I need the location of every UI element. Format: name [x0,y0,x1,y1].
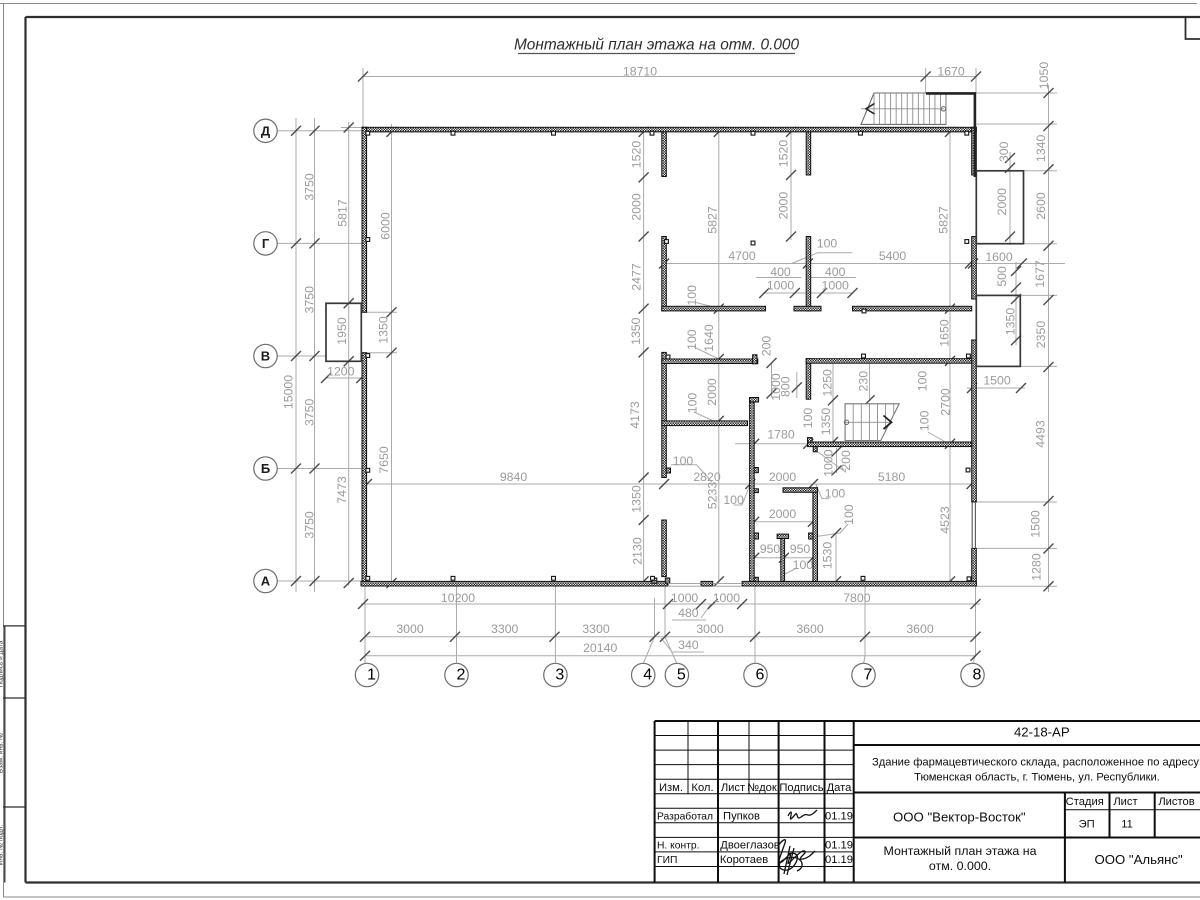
svg-text:Здание фармацевтического склад: Здание фармацевтического склада, располо… [872,757,1200,769]
svg-text:7650: 7650 [377,446,391,474]
svg-text:340: 340 [678,638,699,652]
svg-text:Подпись и дата: Подпись и дата [0,640,5,687]
svg-text:3750: 3750 [302,511,316,539]
svg-text:1340: 1340 [1034,134,1048,162]
svg-text:Инв. № подл.: Инв. № подл. [0,825,5,866]
svg-text:2600: 2600 [1034,192,1048,220]
svg-text:200: 200 [759,336,773,357]
svg-text:1677: 1677 [1033,260,1047,288]
svg-text:950: 950 [790,542,811,556]
svg-text:1000: 1000 [713,591,741,605]
svg-text:ГИП: ГИП [657,855,677,866]
svg-text:100: 100 [918,410,932,431]
svg-text:4173: 4173 [628,401,642,429]
svg-text:4493: 4493 [1033,420,1047,448]
svg-text:4700: 4700 [728,249,756,263]
svg-text:400: 400 [770,265,791,279]
svg-text:5233: 5233 [705,482,719,510]
svg-text:100: 100 [723,493,744,507]
svg-text:100: 100 [685,285,699,306]
svg-text:500: 500 [995,266,1009,287]
svg-text:1000: 1000 [671,591,699,605]
svg-text:1650: 1650 [937,319,951,347]
svg-text:6: 6 [756,667,765,684]
svg-text:1350: 1350 [629,317,643,345]
svg-text:1670: 1670 [937,64,965,78]
svg-text:3600: 3600 [796,622,824,636]
svg-text:3600: 3600 [906,622,934,636]
svg-text:5180: 5180 [878,470,906,484]
svg-text:01.19: 01.19 [825,854,853,866]
svg-text:Тюменская область, г. Тюмень,: Тюменская область, г. Тюмень, ул. Респуб… [914,772,1160,784]
svg-text:Изм.: Изм. [659,782,683,794]
svg-text:5: 5 [677,667,686,684]
svg-text:Двоеглазов: Двоеглазов [720,839,780,851]
svg-text:1050: 1050 [1037,62,1051,90]
svg-text:1000: 1000 [822,449,836,477]
svg-text:2000: 2000 [769,470,797,484]
svg-text:№док.: №док. [747,782,780,794]
svg-text:1500: 1500 [983,373,1011,387]
svg-text:4: 4 [643,667,652,684]
svg-text:А: А [261,574,271,589]
svg-text:01.19: 01.19 [825,810,853,822]
svg-text:1640: 1640 [702,324,716,352]
svg-text:1280: 1280 [1029,553,1043,581]
svg-text:200: 200 [839,450,853,471]
svg-text:7473: 7473 [335,476,349,504]
svg-text:5817: 5817 [335,199,349,227]
svg-text:1000: 1000 [822,279,850,293]
svg-text:480: 480 [678,606,699,620]
svg-text:Подпись: Подпись [779,782,823,794]
svg-text:Г: Г [262,236,270,251]
svg-text:Дата: Дата [827,782,853,794]
svg-text:Кол.: Кол. [691,782,713,794]
svg-text:10200: 10200 [441,591,475,605]
svg-text:1200: 1200 [327,364,355,378]
svg-text:100: 100 [916,371,930,392]
svg-text:9840: 9840 [500,470,528,484]
svg-text:3750: 3750 [302,286,316,314]
svg-text:2000: 2000 [769,507,797,521]
svg-text:3: 3 [555,667,564,684]
svg-text:Н. контр.: Н. контр. [657,840,700,851]
svg-text:100: 100 [793,558,814,572]
svg-text:100: 100 [817,236,838,250]
svg-text:2700: 2700 [938,388,952,416]
svg-text:100: 100 [673,454,694,468]
svg-text:2: 2 [457,667,466,684]
svg-text:1000: 1000 [767,279,795,293]
svg-text:ООО "Альянс": ООО "Альянс" [1095,852,1183,867]
svg-text:Д: Д [261,124,271,139]
svg-text:8: 8 [973,667,982,684]
svg-text:Стадия: Стадия [1066,796,1104,808]
svg-text:Монтажный план этажа на отм. 0: Монтажный план этажа на отм. 0.000 [514,37,799,54]
svg-text:1950: 1950 [335,317,349,345]
svg-text:1520: 1520 [629,141,643,169]
svg-text:230: 230 [857,371,871,392]
svg-text:42-18-АР: 42-18-АР [1014,724,1070,739]
svg-text:7: 7 [864,667,873,684]
svg-text:Лист: Лист [721,782,745,794]
svg-text:950: 950 [760,542,781,556]
svg-text:2130: 2130 [630,537,644,565]
svg-text:ООО "Вектор-Восток": ООО "Вектор-Восток" [893,810,1026,825]
svg-text:ЭП: ЭП [1079,819,1095,831]
svg-text:18710: 18710 [623,64,657,78]
svg-text:7800: 7800 [843,591,871,605]
svg-text:3300: 3300 [582,622,610,636]
svg-text:01.19: 01.19 [825,839,853,851]
svg-text:1250: 1250 [821,369,835,397]
svg-text:Лист: Лист [1113,796,1137,808]
svg-text:100: 100 [685,329,699,350]
svg-text:5827: 5827 [705,206,719,234]
svg-text:2820: 2820 [693,470,721,484]
svg-text:15000: 15000 [281,375,295,409]
svg-text:Листов: Листов [1158,796,1194,808]
svg-text:1600: 1600 [985,250,1013,264]
svg-text:4523: 4523 [938,506,952,534]
svg-text:3000: 3000 [696,622,724,636]
svg-text:400: 400 [825,265,846,279]
svg-text:2350: 2350 [1034,321,1048,349]
svg-text:Б: Б [261,461,270,476]
svg-text:5400: 5400 [879,249,907,263]
svg-text:2000: 2000 [776,192,790,220]
svg-text:1500: 1500 [1028,510,1042,538]
svg-text:1350: 1350 [1004,308,1018,336]
svg-text:3750: 3750 [302,398,316,426]
svg-text:3300: 3300 [491,622,519,636]
svg-text:100: 100 [801,408,815,429]
svg-text:2000: 2000 [705,378,719,406]
svg-text:3000: 3000 [396,622,424,636]
svg-text:1520: 1520 [776,140,790,168]
svg-text:1780: 1780 [767,427,795,441]
svg-text:Взам. инв. №: Взам. инв. № [0,733,5,773]
svg-text:1000: 1000 [769,373,783,401]
svg-text:Пупков: Пупков [723,810,760,822]
svg-text:1530: 1530 [821,542,835,570]
svg-text:1: 1 [367,667,376,684]
svg-text:Коротаев: Коротаев [720,854,768,866]
svg-text:отм. 0.000.: отм. 0.000. [929,859,991,873]
svg-text:100: 100 [825,487,846,501]
svg-text:11: 11 [1121,819,1133,831]
svg-text:2000: 2000 [629,193,643,221]
svg-text:20140: 20140 [583,641,617,655]
svg-text:1350: 1350 [819,408,833,436]
svg-text:Разработал: Разработал [657,810,713,822]
svg-text:300: 300 [997,141,1011,162]
svg-text:2000: 2000 [995,188,1009,216]
svg-text:6000: 6000 [378,212,392,240]
svg-text:Монтажный план этажа на: Монтажный план этажа на [884,844,1037,858]
svg-text:2477: 2477 [629,263,643,291]
svg-text:1350: 1350 [629,485,643,513]
svg-text:100: 100 [685,393,699,414]
svg-text:1350: 1350 [376,316,390,344]
svg-text:100: 100 [842,504,856,525]
svg-text:3750: 3750 [302,173,316,201]
svg-text:В: В [261,349,270,364]
svg-text:5827: 5827 [936,206,950,234]
